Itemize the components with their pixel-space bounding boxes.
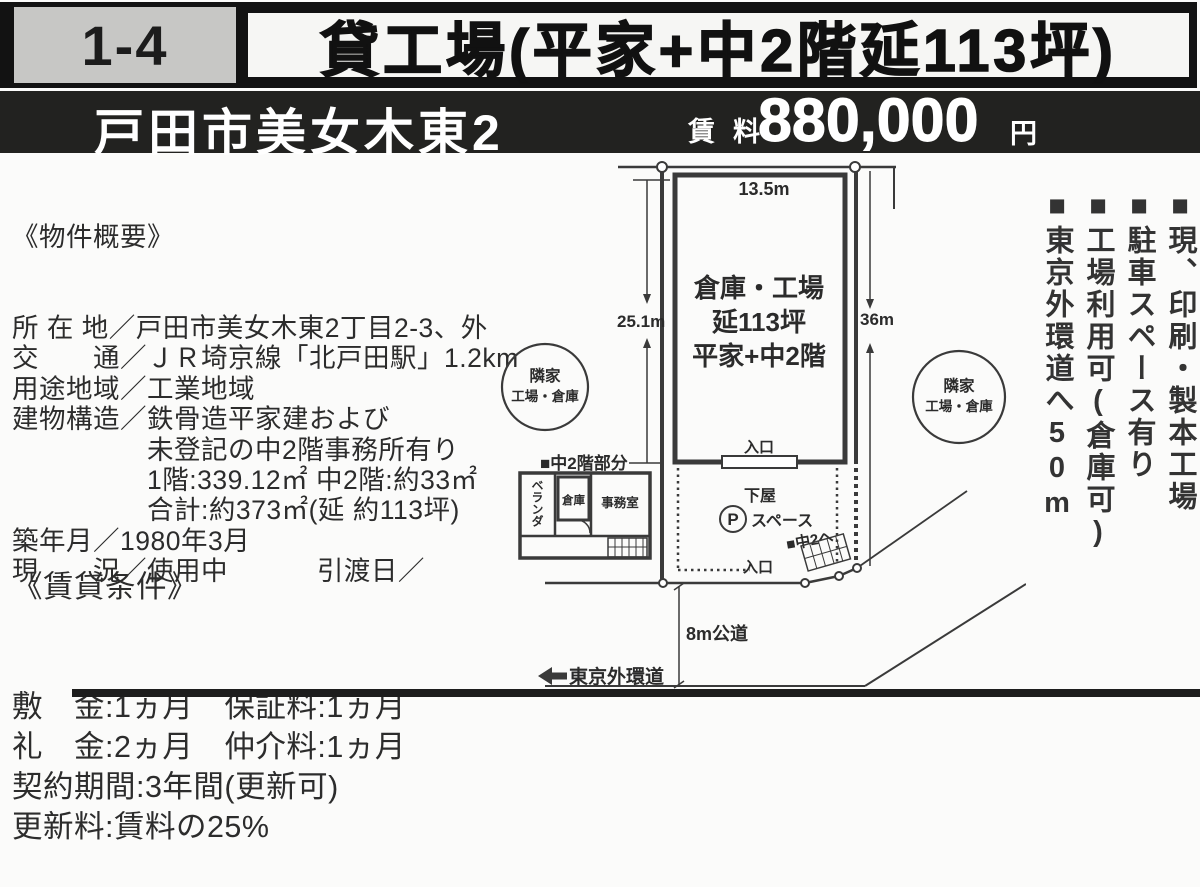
conditions-line: 礼 金:2ヵ月 仲介料:1ヵ月 — [12, 727, 406, 767]
entrance-bottom-label: 入口 — [743, 559, 773, 576]
overview-line: 所 在 地／戸田市美女木東2丁目2-3、外 — [12, 313, 519, 343]
overview-line: 用途地域／工業地域 — [12, 374, 519, 404]
listing-title: 貸工場(平家+中2階延113坪) — [248, 13, 1189, 77]
building-label-2: 延113坪 — [711, 307, 806, 337]
road-edge-diagonal — [865, 584, 1026, 686]
feature-note: ■駐車スペース有り — [1118, 190, 1159, 702]
conditions-lines: 敷 金:1ヵ月 保証料:1ヵ月礼 金:2ヵ月 仲介料:1ヵ月契約期間:3年間(更… — [12, 687, 406, 847]
conditions-line: 更新料:賃料の25% — [12, 807, 406, 847]
arrow-down-icon — [866, 299, 874, 309]
scan-edge-strip — [72, 689, 1200, 697]
feature-note: ■東京外環道へ50m — [1036, 190, 1077, 702]
storage-label: 倉庫 — [561, 493, 585, 507]
arrow-up-icon — [643, 338, 651, 348]
overview-line: 交 通／ＪＲ埼京線「北戸田駅」1.2km — [12, 343, 519, 373]
building-width-label: 13.5m — [738, 179, 789, 199]
neighbor-label-2: 工場・倉庫 — [925, 398, 993, 414]
boundary-point — [853, 564, 861, 572]
rental-conditions-section: 《賃貸条件》 敷 金:1ヵ月 保証料:1ヵ月礼 金:2ヵ月 仲介料:1ヵ月契約期… — [12, 487, 406, 887]
lower-roof-label: 下屋 — [744, 487, 776, 505]
site-plan-svg: 8m公道 東京外環道 25.1m 36m 13.5m 倉庫・工場 延113坪 平… — [468, 155, 1026, 697]
parking-symbol: P — [727, 510, 738, 529]
feature-note: ■工場利用可(倉庫可) — [1077, 190, 1118, 702]
rent-unit: 円 — [1010, 112, 1037, 151]
rent-amount: 880,000 — [758, 85, 979, 155]
neighbor-label-2: 工場・倉庫 — [511, 388, 579, 404]
boundary-point — [801, 579, 809, 587]
road-label: 8m公道 — [686, 623, 748, 644]
site-plan-diagram: 8m公道 東京外環道 25.1m 36m 13.5m 倉庫・工場 延113坪 平… — [468, 155, 1026, 697]
neighbor-label-1: 隣家 — [943, 376, 975, 395]
veranda-label: ベランダ — [530, 479, 544, 527]
subheader-bar: 戸田市美女木東2 賃 料 880,000 円 — [0, 91, 1200, 153]
entrance-marker — [722, 456, 797, 468]
listing-code-badge: 1-4 — [14, 7, 236, 83]
feature-notes: ■現、印刷・製本工場■駐車スペース有り■工場利用可(倉庫可)■東京外環道へ50m — [1014, 190, 1200, 702]
arrow-up-icon — [866, 343, 874, 353]
rent-label: 賃 — [688, 110, 715, 149]
location-text: 戸田市美女木東2 — [94, 93, 504, 165]
door-arc — [577, 520, 590, 533]
overview-heading: 《物件概要》 — [12, 222, 519, 252]
boundary-diagonal — [857, 491, 967, 568]
dim-right-label: 36m — [860, 310, 894, 329]
rent-label: 料 — [733, 110, 760, 149]
boundary-point — [659, 579, 667, 587]
boundary-point — [835, 572, 843, 580]
building-label-1: 倉庫・工場 — [693, 273, 824, 303]
neighbor-label-1: 隣家 — [529, 366, 561, 385]
neighbor-right: 隣家 工場・倉庫 — [913, 351, 1005, 443]
conditions-heading: 《賃貸条件》 — [12, 567, 406, 607]
feature-note: ■現、印刷・製本工場 — [1159, 190, 1200, 702]
building-label-3: 平家+中2階 — [692, 341, 826, 371]
parking-space-label: スペース — [751, 513, 813, 530]
mezzanine-label: ■中2階部分 — [540, 453, 628, 473]
overview-line: 未登記の中2階事務所有り — [12, 435, 519, 465]
office-label: 事務室 — [601, 495, 639, 510]
neighbor-left: 隣家 工場・倉庫 — [502, 344, 588, 430]
stairs-icon — [608, 538, 647, 557]
left-arrow-icon — [538, 667, 567, 685]
boundary-corner-1 — [805, 576, 839, 583]
entrance-top-label: 入口 — [744, 439, 774, 456]
boundary-point — [850, 162, 860, 172]
overview-line: 建物構造／鉄骨造平家建および — [12, 404, 519, 434]
outer-road-label: 東京外環道 — [569, 665, 664, 688]
header-bar: 1-4 貸工場(平家+中2階延113坪) — [0, 2, 1197, 88]
arrow-down-icon — [643, 294, 651, 304]
boundary-point — [657, 162, 667, 172]
property-flyer: { "header": { "code": "1-4", "title": "貸… — [0, 0, 1200, 697]
conditions-line: 契約期間:3年間(更新可) — [12, 767, 406, 807]
dim-left-label: 25.1m — [617, 312, 665, 331]
